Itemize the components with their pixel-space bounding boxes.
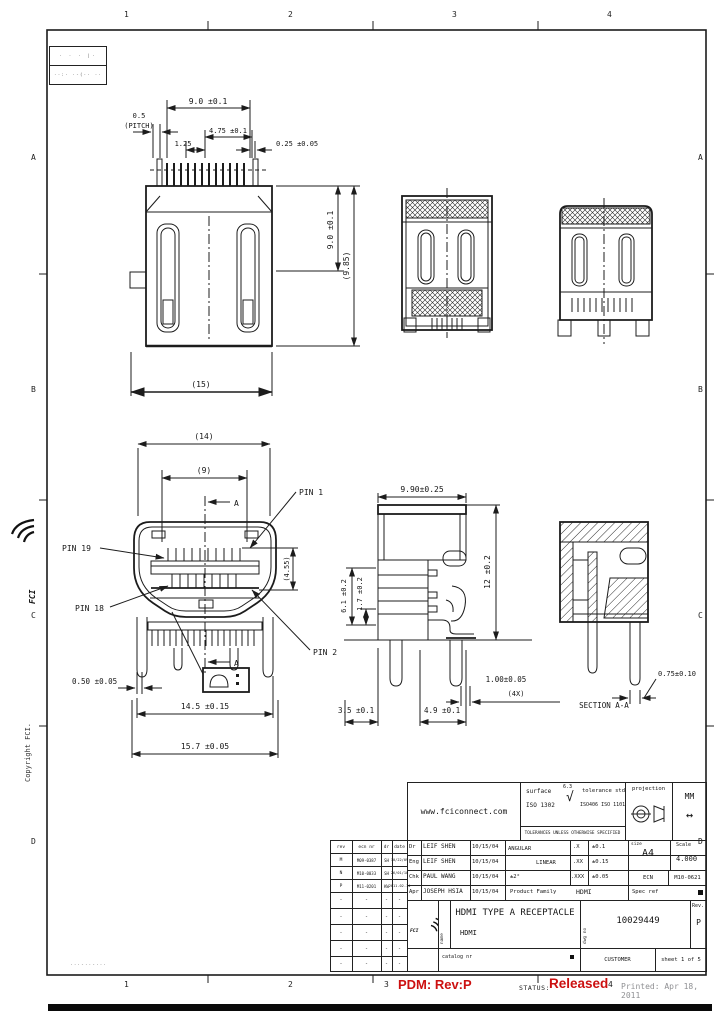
- tolerance-std-value: ISO406 ISO 1101: [580, 802, 625, 808]
- rev-row-cell: -: [330, 894, 352, 906]
- label-pin18: PIN 18: [75, 604, 104, 613]
- iso-view-2-drawing: [558, 198, 652, 344]
- zone-left-d: D: [31, 837, 36, 846]
- dim-side-35: 3.5 ±0.1: [338, 706, 374, 715]
- dim-side-12: 12 ±0.2: [483, 555, 492, 589]
- dim-side-49: 4.9 ±0.1: [424, 706, 460, 715]
- part-number: 10029449: [588, 912, 688, 930]
- surface-label: surface: [526, 788, 551, 795]
- dim-side-990: 9.90±0.25: [400, 485, 444, 494]
- scale-value: 4.000: [676, 855, 697, 863]
- sign-role-chk: Chk: [409, 874, 419, 880]
- zone-right-b: B: [698, 385, 703, 394]
- drawing-page: 9.0 ±0.1 0.5 (PITCH) 1.25 4.75 ±0.1 0.25…: [0, 0, 720, 1012]
- dim-side-17: 1.7 ±0.2: [356, 577, 364, 611]
- rev-row-cell: -: [352, 943, 381, 955]
- side-view-drawing: [344, 493, 560, 726]
- section-arrow-label-top: A: [234, 499, 239, 508]
- rev-row-cell: -: [381, 958, 392, 970]
- zone-bottom-2: 2: [288, 980, 293, 989]
- fci-logo-margin-text: FCI: [28, 589, 37, 604]
- customer-label: CUSTOMER: [580, 949, 655, 971]
- units-arrow-icon: ↔: [673, 808, 706, 822]
- drawing-title: HDMI TYPE A RECEPTACLE: [452, 904, 578, 922]
- rev-row-cell: -: [392, 927, 407, 939]
- scale-label: Scale: [676, 842, 691, 848]
- date-col-header: date: [392, 841, 407, 853]
- zone-bottom-1: 1: [124, 980, 129, 989]
- rev-row-cell: -: [381, 927, 392, 939]
- sign-date-apr: 10/15/04: [472, 889, 499, 895]
- rev-row-cell: M10-0033: [352, 867, 381, 879]
- sheet-label: sheet 1 of 5: [655, 949, 707, 971]
- label-pin2: PIN 2: [313, 648, 337, 657]
- rev-row-cell: -: [352, 911, 381, 923]
- zone-top-4: 4: [607, 10, 612, 19]
- dim-rear-width: 9.0 ±0.1: [189, 97, 228, 106]
- lin-tol-v1: ±0.1: [592, 844, 605, 850]
- dim-front-050: 0.50 ±0.05: [72, 677, 117, 686]
- dim-rear-overall: (15): [191, 380, 210, 389]
- rev-row-cell: 10/22/09: [392, 854, 407, 866]
- lin-tol-k3: .XXX: [571, 874, 584, 880]
- status-label: STATUS:: [519, 984, 550, 992]
- rev-row-cell: -: [392, 894, 407, 906]
- corner-table-row2: ··:· ·-(·· ··: [49, 65, 107, 85]
- ecn-value: M10-0621: [668, 871, 707, 885]
- rev-row-cell: 26/01/10: [392, 867, 407, 879]
- rev-value: P: [690, 914, 707, 930]
- lin-tol-v2: ±0.15: [592, 859, 609, 865]
- sign-name-chk: PAUL WANG: [423, 873, 456, 880]
- section-view-drawing: [560, 522, 656, 704]
- dim-front-145: 14.5 ±0.15: [181, 702, 229, 711]
- zone-right-a: A: [698, 153, 703, 162]
- sign-role-dr: Dr: [409, 844, 416, 850]
- zone-top-3: 3: [452, 10, 457, 19]
- pdm-rev-status: PDM: Rev:P: [398, 977, 472, 992]
- section-arrow-label-bottom: A: [234, 659, 239, 668]
- company-url: www.fciconnect.com: [409, 782, 519, 840]
- name-column-label: name: [440, 904, 450, 944]
- sign-name-dr: LEIF SHEN: [423, 843, 456, 850]
- sign-role-eng: Eng: [409, 859, 419, 865]
- dr-col-header: dr: [381, 841, 392, 853]
- section-title: SECTION A-A: [579, 701, 629, 710]
- rev-row-cell: -: [392, 911, 407, 923]
- ecn-label: ECN: [628, 871, 668, 885]
- dim-side-100: 1.00±0.05: [486, 675, 527, 684]
- units-value: MM: [673, 790, 706, 802]
- surface-check-icon: √: [566, 790, 574, 805]
- zone-bottom-4: 4: [608, 980, 613, 989]
- angular-label: ANGULAR: [508, 846, 531, 852]
- copyright-text: Copyright FCI.: [24, 686, 35, 782]
- dim-rear-pitch-label: (PITCH): [124, 122, 154, 130]
- fci-logo-titleblock-text: FCI: [410, 928, 419, 934]
- sign-name-eng: LEIF SHEN: [423, 858, 456, 865]
- rev-row-cell: M11-0201: [352, 880, 381, 892]
- rev-row-cell: M09-0387: [352, 854, 381, 866]
- size-label: size: [631, 842, 642, 847]
- product-family-label: Product Family: [510, 889, 556, 895]
- dim-front-9: (9): [197, 466, 211, 475]
- spec-ref-label: Spec ref: [632, 889, 659, 895]
- dim-rear-height: 9.0 ±0.1: [326, 211, 335, 250]
- dim-section-075: 0.75±0.10: [658, 670, 696, 678]
- dim-rear-475: 4.75 ±0.1: [209, 127, 247, 135]
- zone-left-b: B: [31, 385, 36, 394]
- zone-bottom-3: 3: [384, 980, 389, 989]
- printed-date: Printed: Apr 18, 2011: [621, 982, 720, 1000]
- label-pin19: PIN 19: [62, 544, 91, 553]
- rev-col-header: rev: [330, 841, 352, 853]
- sign-date-dr: 10/15/04: [472, 844, 499, 850]
- fci-logo-waves-icon: [12, 520, 34, 542]
- dim-rear-height-ref: (9.85): [342, 252, 351, 281]
- corner-table-row1: · · · |·: [49, 46, 107, 66]
- projection-label: projection: [626, 784, 671, 794]
- dim-front-157: 15.7 ±0.05: [181, 742, 229, 751]
- fci-logo-titleblock-waves-icon: [431, 918, 438, 931]
- zone-top-1: 1: [124, 10, 129, 19]
- ecn-col-header: ecn nr: [352, 841, 381, 853]
- rev-row-cell: -: [330, 943, 352, 955]
- rev-row-cell: -: [352, 927, 381, 939]
- rev-row-cell: N: [330, 867, 352, 879]
- surface-std: ISO 1302: [526, 802, 555, 809]
- dim-rear-025: 0.25 ±0.05: [276, 140, 318, 148]
- zone-right-c: C: [698, 611, 703, 620]
- zone-left-c: C: [31, 611, 36, 620]
- fci-logo-titleblock: FCI: [410, 908, 438, 948]
- catalog-label: catalog nr: [442, 954, 472, 960]
- rev-row-cell: -: [330, 958, 352, 970]
- dimension-labels: 9.0 ±0.1 0.5 (PITCH) 1.25 4.75 ±0.1 0.25…: [62, 97, 696, 751]
- dim-rear-125: 1.25: [175, 140, 192, 148]
- lin-tol-k2: .XX: [573, 859, 583, 865]
- dim-front-455: (4.55): [283, 556, 291, 581]
- rev-row-cell: -: [381, 911, 392, 923]
- rev-label: Rev.: [692, 903, 704, 909]
- sign-date-chk: 10/15/04: [472, 874, 499, 880]
- angular-tol-value: ±2°: [510, 874, 520, 880]
- rev-row-cell: 2011-02-14: [392, 880, 407, 892]
- catalog-marker: [570, 955, 574, 959]
- tolerance-std-label: tolerance std: [582, 788, 625, 794]
- rev-row-cell: -: [330, 911, 352, 923]
- sign-name-apr: JOSEPH HSIA: [423, 888, 463, 895]
- rev-row-cell: -: [381, 894, 392, 906]
- tolerance-note: TOLERANCES UNLESS OTHERWISE SPECIFIED: [521, 827, 624, 839]
- rev-row-cell: -: [381, 943, 392, 955]
- lin-tol-k1: .X: [573, 844, 580, 850]
- product-family-value: HDMI: [576, 888, 592, 896]
- rev-row-cell: -: [392, 958, 407, 970]
- rev-row-cell: -: [352, 958, 381, 970]
- dim-rear-pitch-value: 0.5: [133, 112, 146, 120]
- drawing-subtitle: HDMI: [460, 929, 477, 937]
- size-value: A4: [642, 848, 654, 859]
- margin-footnote: ···-··-···: [70, 963, 107, 968]
- rev-row-cell: -: [330, 927, 352, 939]
- sign-date-eng: 10/15/04: [472, 859, 499, 865]
- zone-top-2: 2: [288, 10, 293, 19]
- status-value: Released: [549, 976, 608, 991]
- lin-tol-v3: ±0.05: [592, 874, 609, 880]
- zone-left-a: A: [31, 153, 36, 162]
- projection-symbol-icon: [631, 800, 667, 832]
- linear-label: LINEAR: [536, 860, 556, 866]
- rev-row-cell: P: [330, 880, 352, 892]
- rev-row-cell: -: [352, 894, 381, 906]
- dim-side-4x: (4X): [508, 690, 525, 698]
- label-pin1: PIN 1: [299, 488, 323, 497]
- sign-role-apr: Apr: [409, 889, 419, 895]
- iso-view-1-drawing: [402, 188, 492, 338]
- fci-logo-margin: FCI: [8, 516, 42, 604]
- dim-front-14: (14): [194, 432, 213, 441]
- dim-side-61: 6.1 ±0.2: [340, 579, 348, 613]
- rev-row-cell: M: [330, 854, 352, 866]
- rev-row-cell: -: [392, 943, 407, 955]
- scan-edge-bar: [48, 1004, 712, 1011]
- title-block: www.fciconnect.com surface ISO 1302 6.3 …: [330, 782, 707, 972]
- spec-ref-marker: [698, 890, 703, 895]
